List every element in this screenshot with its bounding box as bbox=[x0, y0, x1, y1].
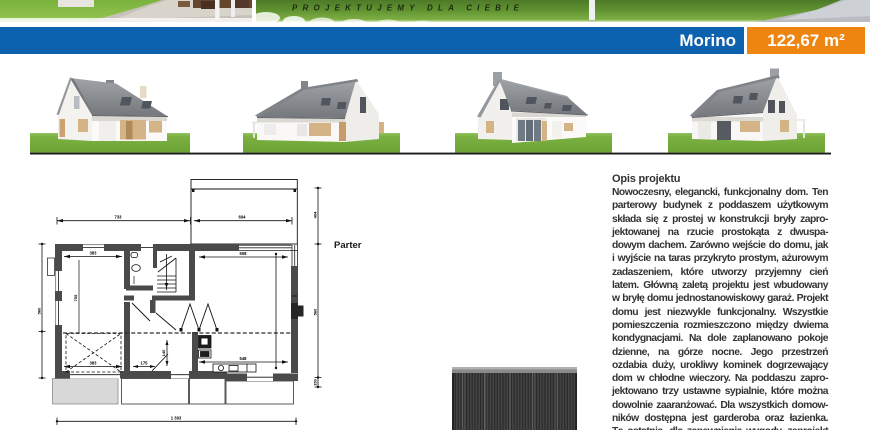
svg-text:150: 150 bbox=[313, 378, 318, 385]
svg-text:733: 733 bbox=[115, 215, 123, 220]
svg-text:PROJEKTUJEMY DLA CIEBIE: PROJEKTUJEMY DLA CIEBIE bbox=[292, 4, 524, 13]
svg-text:548: 548 bbox=[240, 356, 248, 361]
svg-text:560: 560 bbox=[37, 307, 42, 314]
svg-text:560: 560 bbox=[313, 308, 318, 315]
svg-text:383: 383 bbox=[90, 361, 98, 366]
svg-text:383: 383 bbox=[90, 251, 98, 256]
svg-text:1 393: 1 393 bbox=[171, 415, 182, 420]
svg-text:755: 755 bbox=[73, 294, 78, 301]
svg-text:508: 508 bbox=[240, 251, 248, 256]
svg-text:175: 175 bbox=[141, 361, 149, 366]
svg-text:140: 140 bbox=[161, 349, 166, 356]
svg-text:604: 604 bbox=[239, 215, 247, 220]
svg-text:404: 404 bbox=[313, 211, 318, 218]
